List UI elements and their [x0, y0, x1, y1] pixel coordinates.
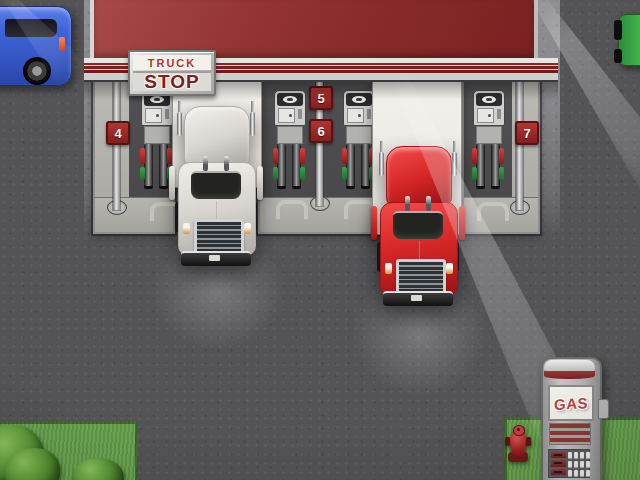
nozzle-green[interactable]: [499, 167, 504, 180]
nozzle-green[interactable]: [342, 167, 347, 180]
cab-body: [380, 202, 458, 296]
pump-slot: [367, 109, 371, 119]
guard-rail: [276, 200, 308, 219]
license-plate: [411, 295, 422, 301]
keypad-key[interactable]: [568, 461, 572, 468]
exhaust-stack: [250, 112, 255, 136]
canopy-support-post: [113, 82, 120, 210]
price-row: [551, 452, 566, 458]
truck-stop-sign-line1: TRUCK: [133, 55, 211, 70]
headlight: [183, 223, 190, 234]
nozzle-green[interactable]: [472, 167, 477, 180]
keypad-keys[interactable]: [568, 452, 590, 475]
pump-display-housing: [476, 93, 502, 106]
roof-horn: [224, 156, 229, 171]
fuel-pump-4[interactable]: [140, 90, 172, 188]
car-wheel: [614, 49, 622, 63]
van-wheel: [23, 57, 51, 85]
side-mirror: [459, 206, 465, 240]
nozzle-green[interactable]: [140, 167, 145, 180]
hood-seam: [216, 201, 218, 219]
pump-base: [346, 126, 372, 144]
hose-rail: [346, 144, 355, 189]
truck-stop-sign-line2: STOP: [133, 71, 211, 91]
gas-vending-machine[interactable]: GAS: [541, 357, 602, 480]
hose-rail: [277, 144, 286, 189]
hood-seam: [418, 241, 420, 259]
roof-horn: [405, 196, 410, 211]
windshield: [191, 171, 241, 199]
island-number-sign-6: 6: [309, 119, 333, 143]
windshield: [393, 211, 443, 239]
hydrant-cap: [513, 425, 525, 436]
pump-display: [352, 96, 366, 103]
side-mirror: [169, 166, 175, 200]
nozzle-red[interactable]: [273, 148, 278, 164]
fuel-pump-5[interactable]: [273, 90, 305, 188]
keypad-key[interactable]: [580, 452, 584, 459]
gas-sign-panel: GAS: [548, 385, 594, 421]
license-plate: [209, 255, 220, 261]
canopy-support-post: [516, 82, 523, 210]
pump-island-5-6: 5 6: [258, 78, 380, 234]
nozzle-red[interactable]: [499, 148, 504, 164]
machine-side-latch[interactable]: [598, 399, 609, 419]
keypad-key[interactable]: [574, 470, 578, 477]
keypad-key[interactable]: [586, 470, 590, 477]
pump-island-4: 4: [93, 80, 175, 234]
car-wheel: [614, 20, 622, 40]
red-truck-cab[interactable]: [380, 146, 456, 306]
truck-stop-sign: TRUCK STOP: [128, 50, 216, 96]
pump-slot: [165, 109, 169, 119]
side-mirror: [371, 206, 377, 240]
machine-stripe-panel: [549, 423, 591, 445]
fuel-pump-6[interactable]: [342, 90, 374, 188]
exhaust-stack: [452, 152, 457, 176]
nozzle-red[interactable]: [342, 148, 347, 164]
pump-head: [343, 90, 375, 126]
chrome-grille: [194, 219, 244, 255]
pump-slot: [298, 109, 302, 119]
keypad-key[interactable]: [580, 470, 584, 477]
nozzle-green[interactable]: [300, 167, 305, 180]
pump-base: [277, 126, 303, 144]
cab-body: [178, 162, 256, 256]
roof-deflector: [184, 106, 250, 166]
pump-island-7: 7: [462, 80, 540, 234]
pump-display-housing: [277, 93, 303, 106]
headlight: [244, 223, 251, 234]
roof-horn: [203, 156, 208, 171]
exhaust-stack: [177, 112, 182, 136]
truck-stop-scene: 4 5 6: [0, 0, 640, 480]
green-car[interactable]: [618, 14, 640, 66]
keypad-key[interactable]: [586, 452, 590, 459]
van-taillight: [59, 37, 65, 51]
headlight: [446, 263, 453, 274]
roof-deflector: [386, 146, 452, 206]
island-number-sign-4: 4: [106, 121, 130, 145]
pump-door: [145, 108, 162, 123]
van-window: [5, 19, 57, 37]
pump-display: [482, 96, 496, 103]
pump-display: [283, 96, 297, 103]
white-truck-cab[interactable]: [178, 106, 254, 266]
fire-hydrant[interactable]: [505, 424, 531, 464]
machine-keypad[interactable]: [548, 449, 590, 478]
pump-head: [274, 90, 306, 126]
roof-horn: [426, 196, 431, 211]
price-row: [551, 469, 566, 475]
hose-rail: [476, 144, 485, 189]
pump-door: [278, 108, 295, 123]
keypad-key[interactable]: [574, 452, 578, 459]
pump-slot: [497, 109, 501, 119]
headlight: [385, 263, 392, 274]
exhaust-stack: [379, 152, 384, 176]
hose-rail: [144, 144, 153, 189]
blue-van[interactable]: [0, 6, 72, 86]
price-rows: [551, 452, 566, 475]
keypad-key[interactable]: [568, 452, 572, 459]
island-number-sign-7: 7: [515, 121, 539, 145]
pump-door: [347, 108, 364, 123]
keypad-key[interactable]: [574, 461, 578, 468]
pump-display: [150, 96, 164, 103]
side-mirror: [257, 166, 263, 200]
pump-display-housing: [346, 93, 372, 106]
chrome-grille: [396, 259, 446, 295]
keypad-key[interactable]: [568, 470, 572, 477]
nozzle-red[interactable]: [140, 148, 145, 164]
pump-head: [473, 90, 505, 126]
keypad-key[interactable]: [580, 461, 584, 468]
fuel-pump-7[interactable]: [472, 90, 504, 188]
nozzle-red[interactable]: [300, 148, 305, 164]
nozzle-red[interactable]: [472, 148, 477, 164]
machine-red-band: [544, 371, 595, 379]
pump-door: [477, 108, 494, 123]
keypad-key[interactable]: [586, 461, 590, 468]
gas-label: GAS: [554, 394, 588, 413]
guard-rail: [477, 202, 509, 221]
pump-base: [476, 126, 502, 144]
pump-base: [144, 126, 170, 144]
nozzle-green[interactable]: [273, 167, 278, 180]
price-row: [551, 460, 566, 466]
island-number-sign-5: 5: [309, 86, 333, 110]
